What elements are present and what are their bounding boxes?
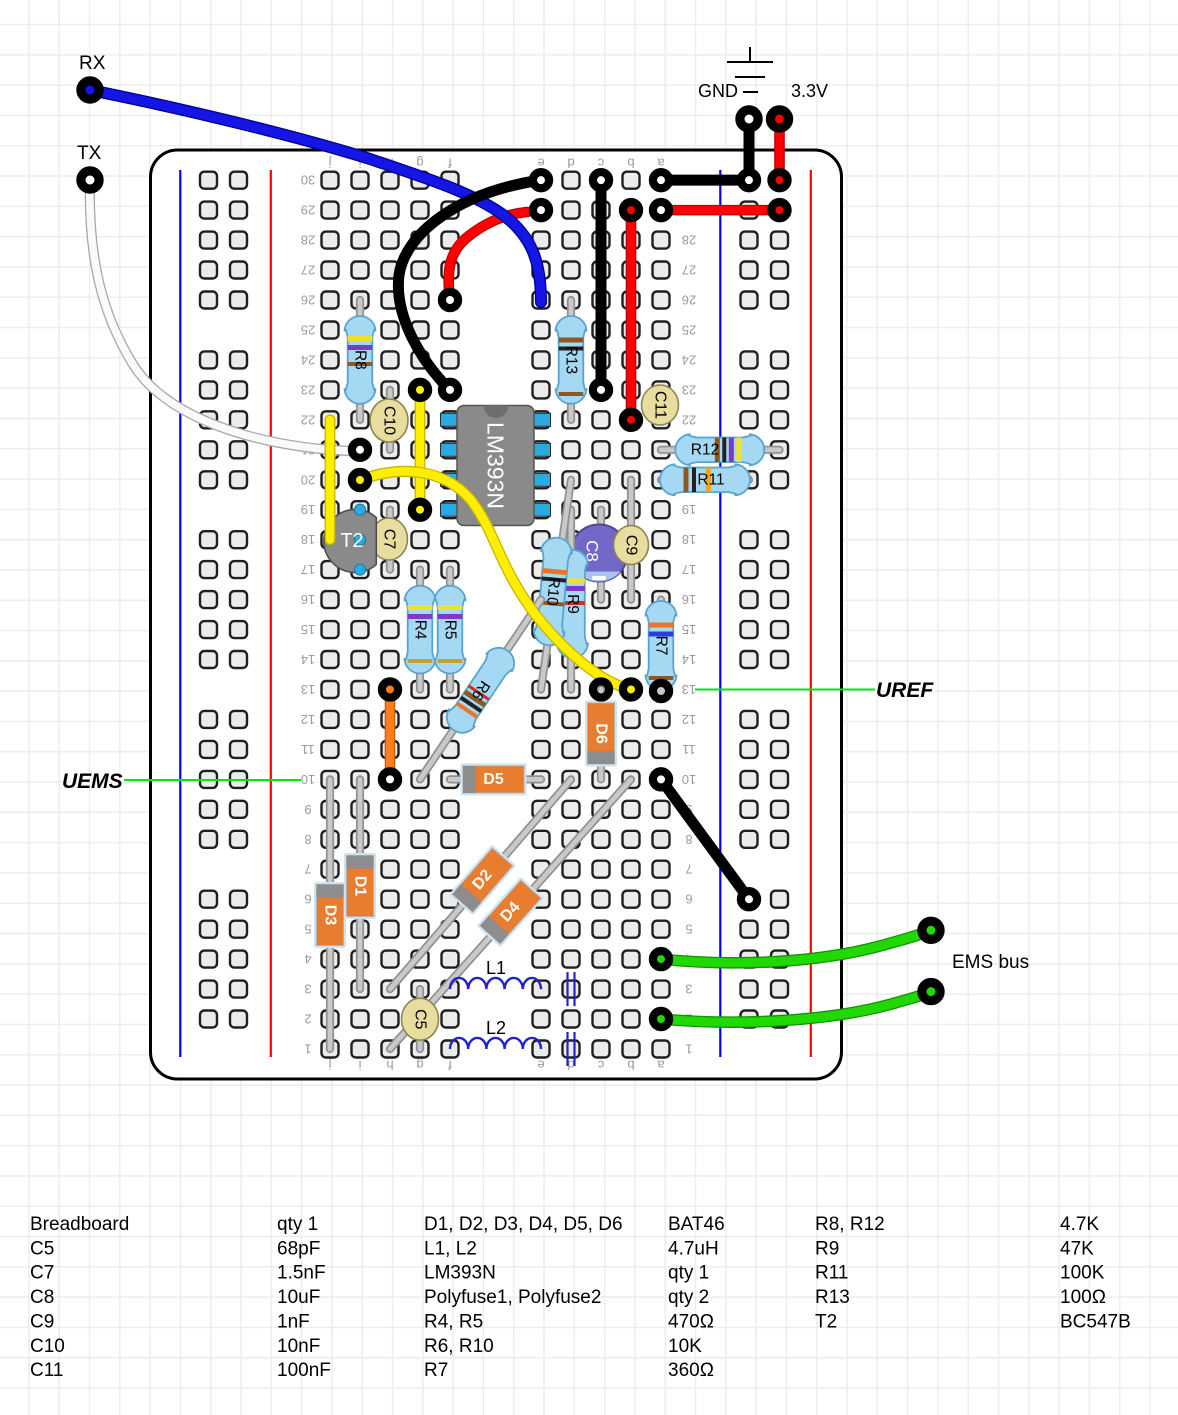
svg-text:10: 10 — [301, 772, 315, 787]
svg-text:7: 7 — [304, 862, 311, 877]
svg-text:T2: T2 — [340, 530, 363, 552]
svg-text:12: 12 — [682, 712, 696, 727]
svg-text:Breadboard: Breadboard — [30, 1214, 129, 1235]
svg-text:D6: D6 — [593, 723, 610, 744]
svg-text:16: 16 — [682, 592, 696, 607]
svg-text:BC547B: BC547B — [1060, 1311, 1131, 1332]
svg-text:27: 27 — [682, 263, 696, 278]
svg-text:C5: C5 — [412, 1009, 429, 1030]
svg-text:TX: TX — [77, 143, 102, 164]
svg-text:17: 17 — [301, 562, 315, 577]
svg-text:470Ω: 470Ω — [668, 1311, 714, 1332]
svg-text:R5: R5 — [442, 620, 459, 640]
svg-text:R7: R7 — [653, 636, 670, 656]
svg-text:g: g — [416, 1058, 423, 1073]
svg-text:D3: D3 — [322, 905, 339, 926]
svg-text:C5: C5 — [30, 1238, 54, 1259]
svg-text:C7: C7 — [381, 529, 398, 550]
svg-text:100nF: 100nF — [277, 1360, 331, 1381]
svg-text:b: b — [627, 156, 634, 171]
svg-text:g: g — [416, 156, 423, 171]
svg-text:13: 13 — [301, 682, 315, 697]
svg-text:Polyfuse1, Polyfuse2: Polyfuse1, Polyfuse2 — [424, 1287, 601, 1308]
svg-text:100Ω: 100Ω — [1060, 1287, 1106, 1308]
svg-text:h: h — [386, 1058, 393, 1073]
svg-text:11: 11 — [682, 742, 696, 757]
svg-text:360Ω: 360Ω — [668, 1360, 714, 1381]
svg-text:L2: L2 — [486, 1018, 506, 1038]
svg-text:R7: R7 — [424, 1360, 448, 1381]
svg-text:15: 15 — [682, 622, 696, 637]
svg-text:d: d — [567, 156, 574, 171]
svg-text:15: 15 — [301, 622, 315, 637]
svg-text:f: f — [448, 156, 452, 171]
svg-text:R9: R9 — [815, 1238, 839, 1259]
svg-text:qty 1: qty 1 — [668, 1263, 709, 1284]
svg-text:18: 18 — [301, 532, 315, 547]
svg-text:47K: 47K — [1060, 1238, 1094, 1259]
svg-text:20: 20 — [301, 472, 315, 487]
svg-text:UEMS: UEMS — [62, 770, 123, 793]
svg-text:22: 22 — [682, 412, 696, 427]
svg-text:LM393N: LM393N — [483, 422, 509, 509]
svg-text:qty 2: qty 2 — [668, 1287, 709, 1308]
svg-text:4.7uH: 4.7uH — [668, 1238, 719, 1259]
svg-text:1: 1 — [304, 1042, 311, 1057]
svg-text:19: 19 — [682, 502, 696, 517]
svg-text:R8: R8 — [352, 350, 369, 370]
svg-text:4: 4 — [304, 952, 311, 967]
svg-text:8: 8 — [685, 832, 692, 847]
svg-text:3: 3 — [304, 982, 311, 997]
svg-text:27: 27 — [301, 263, 315, 278]
svg-text:14: 14 — [301, 652, 315, 667]
svg-text:D1, D2, D3, D4, D5, D6: D1, D2, D3, D4, D5, D6 — [424, 1214, 623, 1235]
svg-text:9: 9 — [304, 802, 311, 817]
svg-text:22: 22 — [301, 412, 315, 427]
svg-text:R11: R11 — [697, 471, 724, 488]
svg-text:23: 23 — [682, 382, 696, 397]
svg-text:i: i — [358, 1058, 361, 1073]
svg-text:b: b — [627, 1058, 634, 1073]
svg-text:3: 3 — [685, 982, 692, 997]
svg-text:24: 24 — [682, 352, 696, 367]
svg-text:a: a — [657, 1058, 665, 1073]
svg-text:R12: R12 — [691, 441, 719, 458]
svg-text:5: 5 — [685, 922, 692, 937]
svg-text:6: 6 — [304, 892, 311, 907]
svg-text:10K: 10K — [668, 1336, 702, 1357]
svg-text:19: 19 — [301, 502, 315, 517]
svg-text:6: 6 — [685, 892, 692, 907]
svg-text:5: 5 — [304, 922, 311, 937]
svg-text:12: 12 — [301, 712, 315, 727]
svg-text:j: j — [328, 156, 332, 171]
svg-text:26: 26 — [301, 293, 315, 308]
svg-text:C7: C7 — [30, 1263, 54, 1284]
svg-text:R13: R13 — [563, 346, 580, 374]
svg-text:26: 26 — [682, 293, 696, 308]
svg-text:C9: C9 — [30, 1311, 54, 1332]
svg-text:L1: L1 — [486, 958, 506, 978]
svg-text:25: 25 — [682, 322, 696, 337]
svg-text:3.3V: 3.3V — [791, 81, 828, 101]
svg-text:4.7K: 4.7K — [1060, 1214, 1099, 1235]
svg-text:BAT46: BAT46 — [668, 1214, 725, 1235]
svg-text:1.5nF: 1.5nF — [277, 1263, 326, 1284]
svg-text:28: 28 — [682, 233, 696, 248]
svg-text:25: 25 — [301, 322, 315, 337]
svg-text:13: 13 — [682, 682, 696, 697]
svg-text:R6, R10: R6, R10 — [424, 1336, 494, 1357]
svg-text:29: 29 — [301, 203, 315, 218]
svg-text:R11: R11 — [815, 1263, 848, 1284]
svg-text:1: 1 — [685, 1042, 692, 1057]
svg-text:UREF: UREF — [876, 679, 934, 702]
svg-text:10: 10 — [682, 772, 696, 787]
svg-text:2: 2 — [304, 1012, 311, 1027]
svg-text:14: 14 — [682, 652, 696, 667]
svg-text:D5: D5 — [483, 771, 504, 788]
svg-text:D1: D1 — [352, 876, 369, 897]
svg-text:17: 17 — [682, 562, 696, 577]
svg-text:11: 11 — [301, 742, 315, 757]
svg-text:RX: RX — [79, 53, 106, 74]
svg-text:24: 24 — [301, 352, 315, 367]
svg-text:8: 8 — [304, 832, 311, 847]
svg-text:16: 16 — [301, 592, 315, 607]
svg-text:T2: T2 — [815, 1311, 837, 1332]
svg-text:C8: C8 — [30, 1287, 54, 1308]
svg-text:C10: C10 — [381, 406, 398, 435]
svg-text:e: e — [537, 1058, 544, 1073]
svg-text:18: 18 — [682, 532, 696, 547]
svg-text:c: c — [597, 1058, 604, 1073]
svg-text:30: 30 — [301, 173, 315, 188]
svg-text:28: 28 — [301, 233, 315, 248]
svg-text:1nF: 1nF — [277, 1311, 310, 1332]
svg-text:L1, L2: L1, L2 — [424, 1238, 477, 1259]
svg-text:68pF: 68pF — [277, 1238, 320, 1259]
svg-text:C11: C11 — [652, 391, 669, 419]
svg-text:R9: R9 — [564, 594, 581, 614]
svg-text:10nF: 10nF — [277, 1336, 320, 1357]
svg-text:23: 23 — [301, 382, 315, 397]
svg-text:R8, R12: R8, R12 — [815, 1214, 885, 1235]
svg-text:qty 1: qty 1 — [277, 1214, 318, 1235]
svg-text:j: j — [328, 1058, 332, 1073]
svg-text:100K: 100K — [1060, 1263, 1105, 1284]
svg-text:EMS bus: EMS bus — [952, 952, 1029, 973]
svg-text:C10: C10 — [30, 1336, 65, 1357]
svg-text:R10: R10 — [543, 577, 563, 607]
svg-text:C11: C11 — [30, 1360, 63, 1381]
svg-text:GND: GND — [698, 81, 738, 101]
svg-text:LM393N: LM393N — [424, 1263, 496, 1284]
svg-text:f: f — [448, 1058, 452, 1073]
svg-text:7: 7 — [685, 862, 692, 877]
svg-text:10uF: 10uF — [277, 1287, 320, 1308]
svg-text:C9: C9 — [623, 535, 640, 556]
svg-text:R4, R5: R4, R5 — [424, 1311, 483, 1332]
svg-text:R13: R13 — [815, 1287, 850, 1308]
svg-text:R4: R4 — [412, 620, 429, 640]
